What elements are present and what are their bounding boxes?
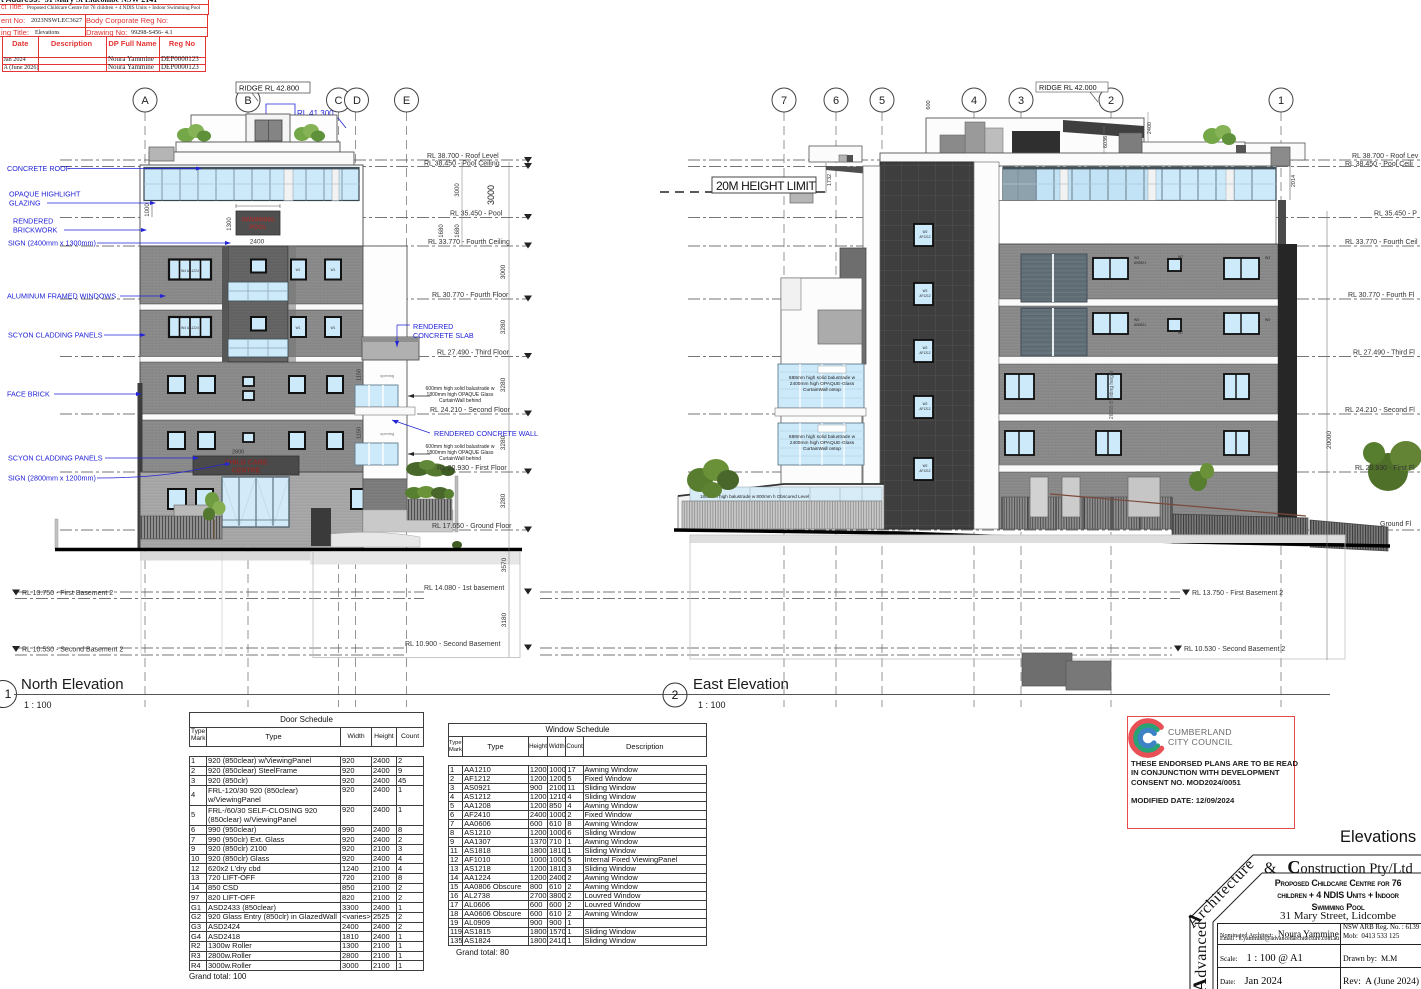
svg-text:600: 600 (926, 100, 932, 109)
svg-text:CurtainWall ontop: CurtainWall ontop (803, 446, 841, 452)
svg-text:W3: W3 (1265, 256, 1270, 260)
svg-text:20000: 20000 (1326, 431, 1333, 449)
svg-text:RL 20.930 - First Fl: RL 20.930 - First Fl (1355, 465, 1415, 472)
svg-text:688mm high solid balustrade w: 688mm high solid balustrade w (789, 375, 856, 381)
svg-text:RL 33.770 - Fourth Ceil: RL 33.770 - Fourth Ceil (1345, 239, 1418, 246)
svg-text:W7: W7 (1178, 255, 1183, 259)
svg-text:AS0921: AS0921 (1134, 323, 1146, 327)
svg-text:RL 13.750 - First Basement 2: RL 13.750 - First Basement 2 (1192, 590, 1283, 597)
svg-text:RL 38.450 - Pool Ceili: RL 38.450 - Pool Ceili (1345, 161, 1413, 168)
svg-text:2014: 2014 (1291, 175, 1297, 187)
svg-text:1732: 1732 (827, 174, 833, 186)
svg-text:W2: W2 (923, 464, 928, 468)
svg-text:RL 30.770 - Fourth Fl: RL 30.770 - Fourth Fl (1348, 292, 1415, 299)
svg-text:W3: W3 (1265, 318, 1270, 322)
svg-text:1 : 100: 1 : 100 (698, 700, 726, 710)
svg-text:W3: W3 (1134, 318, 1139, 322)
svg-text:2: 2 (672, 688, 679, 702)
svg-text:26055 Building height: 26055 Building height (1109, 370, 1115, 419)
svg-text:CurtainWall ontop: CurtainWall ontop (803, 387, 841, 393)
svg-text:RIDGE RL 42.000: RIDGE RL 42.000 (1039, 83, 1097, 92)
svg-text:688mm high solid balustrade w: 688mm high solid balustrade w (789, 434, 856, 440)
svg-text:AF1212: AF1212 (919, 469, 930, 473)
svg-text:RL 24.210 - Second Fl: RL 24.210 - Second Fl (1345, 407, 1415, 414)
svg-text:W2: W2 (923, 402, 928, 406)
svg-text:RL 35.450 - P: RL 35.450 - P (1374, 211, 1417, 218)
svg-text:W3: W3 (1134, 256, 1139, 260)
svg-text:AF1212: AF1212 (919, 351, 930, 355)
svg-text:W7: W7 (1178, 331, 1183, 335)
svg-text:Ground Fl: Ground Fl (1380, 521, 1412, 528)
svg-text:AF1212: AF1212 (919, 235, 930, 239)
svg-text:AS0921: AS0921 (1134, 261, 1146, 265)
svg-text:20M HEIGHT LIMIT: 20M HEIGHT LIMIT (716, 179, 816, 193)
svg-text:AF1212: AF1212 (919, 407, 930, 411)
svg-text:East Elevation: East Elevation (693, 676, 789, 693)
svg-text:W2: W2 (923, 289, 928, 293)
svg-text:W2: W2 (923, 230, 928, 234)
svg-text:AF1212: AF1212 (919, 294, 930, 298)
svg-text:RL 27.490 - Third Fl: RL 27.490 - Third Fl (1353, 350, 1415, 357)
svg-text:W2: W2 (923, 346, 928, 350)
svg-text:RL 10.530 - Second Basement 2: RL 10.530 - Second Basement 2 (1184, 646, 1285, 653)
svg-text:RL 38.700 - Roof Lev: RL 38.700 - Roof Lev (1352, 153, 1419, 160)
svg-text:2400mm high OPAQUE-Glass: 2400mm high OPAQUE-Glass (790, 440, 855, 446)
svg-text:2400mm high OPAQUE-Glass: 2400mm high OPAQUE-Glass (790, 381, 855, 387)
